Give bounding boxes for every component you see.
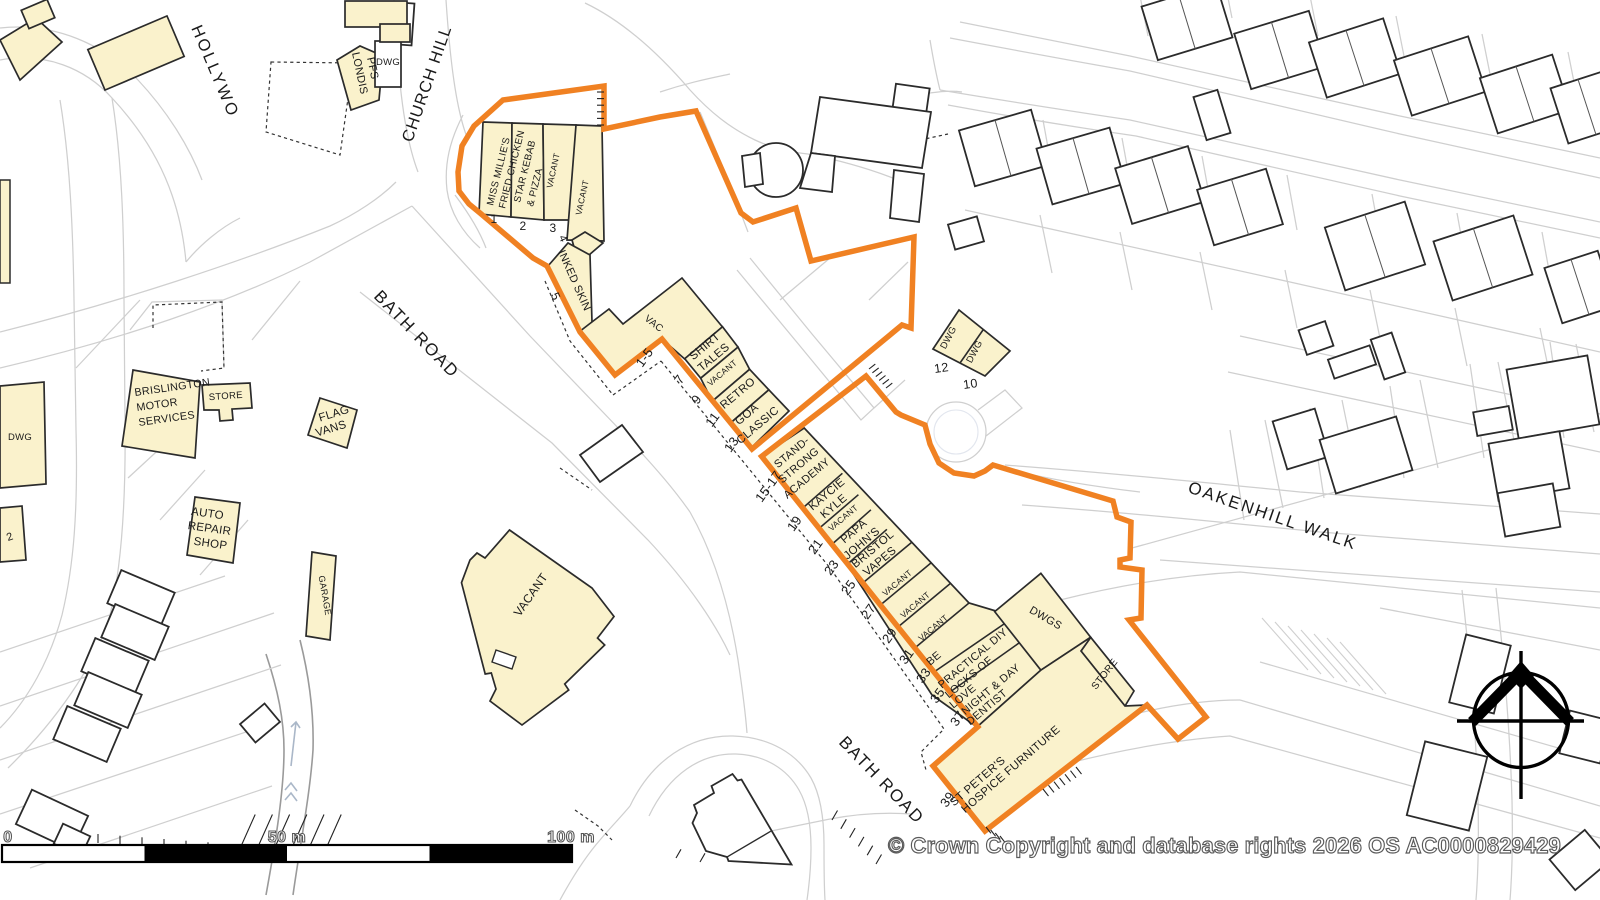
svg-text:2: 2 bbox=[520, 219, 527, 233]
svg-text:© Crown Copyright and database: © Crown Copyright and database rights 20… bbox=[888, 833, 1561, 858]
svg-text:100 m: 100 m bbox=[547, 829, 595, 846]
svg-text:0: 0 bbox=[3, 829, 12, 846]
svg-text:50 m: 50 m bbox=[268, 829, 306, 846]
svg-text:10: 10 bbox=[962, 376, 978, 392]
svg-text:DWG: DWG bbox=[8, 432, 32, 443]
svg-text:1: 1 bbox=[491, 212, 498, 226]
svg-text:3: 3 bbox=[550, 221, 557, 235]
svg-text:DWG: DWG bbox=[376, 57, 400, 68]
svg-text:12: 12 bbox=[933, 360, 949, 376]
